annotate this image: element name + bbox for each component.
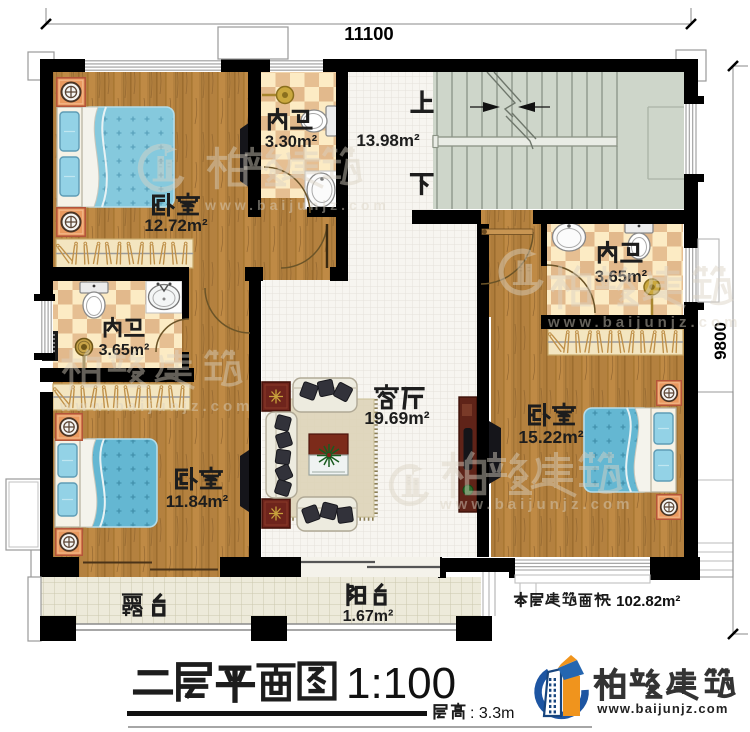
svg-text:www.baijunjz.com: www.baijunjz.com xyxy=(439,496,633,513)
svg-text:www.baijunjz.com: www.baijunjz.com xyxy=(596,701,728,716)
svg-text:11.84m²: 11.84m² xyxy=(166,492,229,511)
svg-text:11100: 11100 xyxy=(344,23,393,44)
svg-text:www.baijunjz.com: www.baijunjz.com xyxy=(204,197,390,213)
svg-text:1:100: 1:100 xyxy=(346,659,456,708)
svg-text:: 3.3m: : 3.3m xyxy=(470,705,514,722)
svg-text:13.98m²: 13.98m² xyxy=(356,131,420,150)
svg-text:www.baijunjz.com: www.baijunjz.com xyxy=(59,398,253,415)
svg-text:: 102.82m²: : 102.82m² xyxy=(607,593,680,610)
svg-text:www.baijunjz.com: www.baijunjz.com xyxy=(547,314,741,331)
svg-text:1.67m²: 1.67m² xyxy=(343,608,394,625)
svg-text:19.69m²: 19.69m² xyxy=(364,408,429,428)
svg-text:12.72m²: 12.72m² xyxy=(144,216,208,235)
svg-text:15.22m²: 15.22m² xyxy=(518,427,583,447)
